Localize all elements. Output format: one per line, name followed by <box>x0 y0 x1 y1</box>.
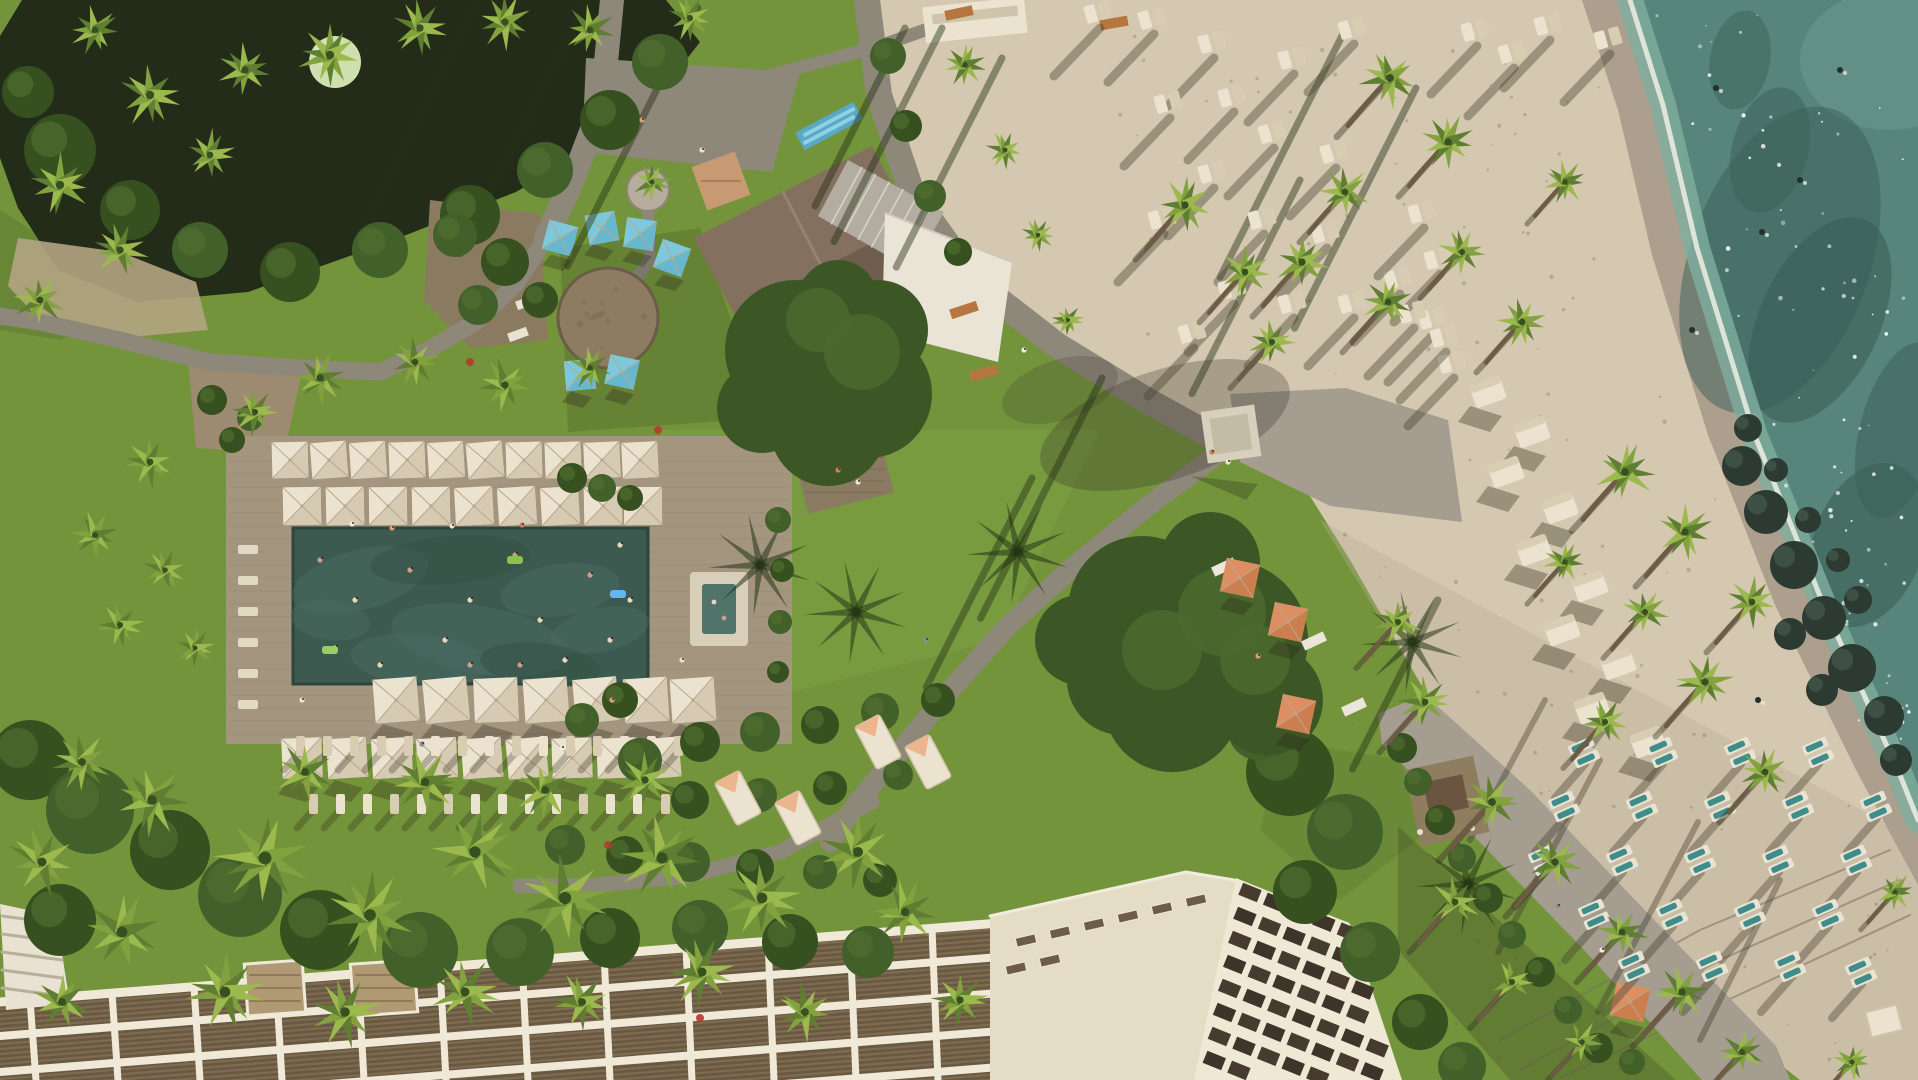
palm-crown <box>340 1007 350 1017</box>
spa-guest <box>712 600 717 605</box>
spa-guest <box>722 616 727 621</box>
ocean-sparkle <box>1818 112 1820 114</box>
palm-crown <box>1551 858 1558 865</box>
person <box>299 697 304 702</box>
person <box>1021 347 1026 352</box>
blue-umbrella-pole <box>638 232 641 235</box>
person <box>1599 947 1604 952</box>
person <box>559 745 564 750</box>
pool-swimmer-head <box>471 662 473 664</box>
aerial-resort-scene <box>0 0 1918 1080</box>
person <box>389 525 394 530</box>
pool-lounger <box>390 794 399 814</box>
pool-lounger <box>498 794 507 814</box>
sand-speckle <box>1592 257 1595 260</box>
pool-lounger <box>363 794 372 814</box>
bush-highlight <box>806 858 823 875</box>
ocean-sparkle <box>1840 472 1842 474</box>
sand-speckle <box>1136 134 1138 136</box>
shore-rock-light <box>1736 417 1749 430</box>
pool-umbrella-pole <box>366 458 369 461</box>
sand-speckle <box>1405 119 1408 122</box>
palm-crown <box>162 567 168 573</box>
bar-stool <box>1417 829 1423 835</box>
palm-crown <box>501 381 508 388</box>
shore-rock <box>1806 674 1838 706</box>
sand-speckle <box>1514 133 1516 135</box>
palm-crown <box>656 852 667 863</box>
palm-crown <box>1066 318 1070 322</box>
sand-speckle <box>1572 297 1575 300</box>
pool-swimmer-head <box>356 597 358 599</box>
shore-rock <box>1826 548 1850 572</box>
pool-swimmer-head <box>516 552 518 554</box>
bush-highlight <box>770 612 782 624</box>
sand-speckle <box>1463 226 1466 229</box>
ocean-sparkle <box>1907 710 1911 714</box>
ocean-sparkle <box>1890 466 1894 470</box>
palm-crown <box>259 852 272 865</box>
palm-crown <box>1036 233 1040 237</box>
sand-speckle <box>1540 791 1543 794</box>
bush-highlight <box>675 785 694 804</box>
swim-splash <box>1719 89 1723 93</box>
ocean-swimmer <box>1759 229 1765 235</box>
bush-highlight <box>865 697 884 716</box>
palm-crown <box>147 459 154 466</box>
swim-splash <box>1765 233 1769 237</box>
shore-rock <box>1844 586 1872 614</box>
pool-umbrella-pole <box>600 458 603 461</box>
blue-umbrella-pole <box>600 226 603 229</box>
ocean-swimmer <box>1797 177 1803 183</box>
pool-lounger <box>238 545 258 554</box>
ocean-sparkle <box>1829 514 1833 518</box>
person <box>349 521 354 526</box>
sand-speckle <box>1462 281 1466 285</box>
bush-highlight <box>200 388 215 403</box>
bush-highlight <box>1528 960 1543 975</box>
person <box>449 523 454 528</box>
sand-texture <box>606 318 611 323</box>
person <box>1209 449 1214 454</box>
pool-umbrella-pole <box>525 756 528 759</box>
pool-umbrella-pole <box>641 504 644 507</box>
sand-speckle <box>1320 48 1324 52</box>
palm-crown <box>1444 138 1451 145</box>
ocean-sparkle <box>1900 738 1902 740</box>
shore-rock <box>1744 490 1788 534</box>
person-head <box>612 698 614 700</box>
bush-highlight <box>1315 802 1353 840</box>
pool-umbrella-pole <box>494 698 497 701</box>
ocean-sparkle <box>1872 472 1876 476</box>
palm-crown <box>1681 528 1688 535</box>
ocean-sparkle <box>1710 41 1712 43</box>
sand-speckle <box>1523 113 1526 116</box>
ocean-sparkle <box>1845 529 1847 531</box>
palm-crown <box>1395 619 1401 625</box>
person-head <box>522 523 524 525</box>
palm-crown <box>578 998 586 1006</box>
palm-crown <box>146 91 154 99</box>
sand-speckle <box>1601 544 1605 548</box>
ocean-sparkle <box>1843 281 1846 284</box>
ocean-sparkle <box>1867 548 1871 552</box>
shore-rock-light <box>1867 700 1885 718</box>
sand-speckle <box>1714 498 1716 500</box>
sand-speckle <box>1598 86 1600 88</box>
sand-speckle <box>1371 609 1373 611</box>
shore-rock-light <box>1846 589 1859 602</box>
shore-rock-light <box>1805 600 1825 620</box>
sand-speckle <box>1867 914 1869 916</box>
bush-highlight <box>893 113 909 129</box>
bush-highlight <box>847 931 873 957</box>
pool-swimmer-head <box>541 617 543 619</box>
palm-crown <box>901 908 909 916</box>
sand-speckle <box>1146 332 1150 336</box>
orange-umbrella-pole <box>1628 1000 1631 1003</box>
bush-highlight <box>1279 866 1311 898</box>
sand-texture <box>600 302 603 305</box>
palm-crown <box>207 152 214 159</box>
ocean-sparkle <box>1879 107 1881 109</box>
palm-crown <box>416 24 423 31</box>
palm-crown <box>1579 1039 1585 1045</box>
bush-highlight <box>886 763 901 778</box>
palm-crown <box>1342 189 1349 196</box>
pool-lounger <box>444 794 453 814</box>
palm-crown <box>1488 798 1496 806</box>
palm-crown <box>1509 979 1515 985</box>
person-head <box>562 746 564 748</box>
palm-crown <box>641 776 648 783</box>
palm-crown <box>1642 609 1648 615</box>
pool-swimmer-head <box>471 597 473 599</box>
person-head <box>838 468 840 470</box>
flower-shrub <box>696 1014 704 1022</box>
palm-crown <box>801 1008 809 1016</box>
sand-speckle <box>1510 96 1513 99</box>
ocean-sparkle <box>1852 278 1857 283</box>
palm-crown <box>1298 258 1305 265</box>
sand-speckle <box>1358 719 1361 722</box>
ocean-sparkle <box>1795 245 1798 248</box>
ocean-sparkle <box>1874 275 1876 277</box>
pool-umbrella-pole <box>483 458 486 461</box>
sand-texture <box>588 317 592 321</box>
bush-highlight <box>462 289 482 309</box>
pool-lounger <box>238 669 258 678</box>
ocean-sparkle <box>1884 332 1888 336</box>
pool-umbrella-pole <box>691 698 694 701</box>
pool-umbrella-pole <box>601 504 604 507</box>
ocean-sparkle <box>1777 163 1781 167</box>
ocean-sparkle <box>1851 520 1853 522</box>
monkeypod-tree <box>717 363 807 453</box>
palm-crown <box>241 66 248 73</box>
aerial-resort-photo <box>0 0 1918 1080</box>
sand-speckle <box>1659 395 1662 398</box>
person-head <box>352 522 354 524</box>
pool-umbrella-pole <box>561 458 564 461</box>
pool-lounger <box>238 607 258 616</box>
pool-lounger <box>512 736 521 756</box>
shore-rock <box>1795 507 1821 533</box>
pool-lounger <box>238 576 258 585</box>
sand-texture <box>641 313 647 319</box>
ocean-sparkle <box>1798 397 1800 399</box>
pool-umbrella-pole <box>327 458 330 461</box>
sand-speckle <box>1257 90 1260 93</box>
person <box>419 741 424 746</box>
bush-highlight <box>568 706 585 723</box>
ocean-sparkle <box>1813 370 1815 372</box>
sand-texture <box>600 347 604 351</box>
sand-speckle <box>1289 110 1292 113</box>
pool-umbrella-pole <box>558 504 561 507</box>
pavilion-roof-top <box>1210 414 1253 455</box>
sand-speckle <box>1656 1038 1659 1041</box>
ocean-sparkle <box>1784 484 1788 488</box>
sand-speckle <box>1142 59 1145 62</box>
shore-rock-light <box>1747 494 1767 514</box>
flower-shrub <box>466 358 474 366</box>
pool-swimmer-head <box>521 662 523 664</box>
palm-crown <box>117 927 128 938</box>
sand-speckle <box>1475 340 1479 344</box>
sand-speckle <box>1522 231 1525 234</box>
shore-rock-light <box>1882 747 1896 761</box>
person-head <box>702 148 704 150</box>
sand-speckle <box>1612 805 1615 808</box>
ocean-sparkle <box>1821 121 1823 123</box>
sand-texture <box>581 301 586 306</box>
sand-speckle <box>1335 373 1337 375</box>
sand-speckle <box>1491 144 1493 146</box>
palm-crown <box>1762 769 1769 776</box>
pool-lounger <box>323 736 332 756</box>
pool-lounger <box>377 736 386 756</box>
pool-lounger <box>579 794 588 814</box>
ocean-sparkle <box>1772 423 1775 426</box>
person-head <box>1258 654 1260 656</box>
palm-crown <box>1562 179 1568 185</box>
swim-splash <box>1803 181 1807 185</box>
ocean-sparkle <box>1833 465 1836 468</box>
person-head <box>1602 948 1604 950</box>
sand-speckle <box>1874 902 1878 906</box>
bush-highlight <box>586 96 616 126</box>
sand-speckle <box>1526 232 1529 235</box>
person-head <box>1558 904 1560 906</box>
ocean-sparkle <box>1866 584 1868 586</box>
sand-speckle <box>1549 790 1551 792</box>
palm-crown <box>1002 147 1007 152</box>
bush-highlight <box>816 774 833 791</box>
bush-highlight <box>684 726 704 746</box>
palm-crown <box>1701 678 1708 685</box>
ocean-sparkle <box>1852 297 1855 300</box>
bush-highlight <box>493 925 527 959</box>
shore-rock <box>1734 414 1762 442</box>
pool-swimmer-head <box>611 637 613 639</box>
pool-lounger <box>485 736 494 756</box>
ocean-sparkle <box>1845 623 1848 626</box>
sand-speckle <box>1399 606 1402 609</box>
tree-highlight <box>786 288 850 352</box>
bush-highlight <box>638 40 666 68</box>
sand-speckle <box>1743 966 1746 969</box>
sand-speckle <box>1635 674 1639 678</box>
blue-umbrella-pole <box>558 236 561 239</box>
bush-highlight <box>947 241 961 255</box>
sand-speckle <box>1557 962 1561 966</box>
ocean-swimmer <box>1755 697 1761 703</box>
palm-crown <box>1519 319 1526 326</box>
ocean-sparkle <box>1846 620 1849 623</box>
sand-speckle <box>1394 97 1396 99</box>
palm-crown <box>461 988 470 997</box>
sand-speckle <box>1834 1042 1836 1044</box>
pool-lounger <box>309 794 318 814</box>
sand-texture <box>613 287 618 292</box>
bush-highlight <box>591 477 605 491</box>
palm-crown <box>1181 201 1188 208</box>
shore-rock-light <box>1766 460 1777 471</box>
sand-speckle <box>1118 113 1122 117</box>
palm-crown <box>252 409 258 415</box>
ocean-sparkle <box>1781 220 1786 225</box>
sand-speckle <box>1546 392 1550 396</box>
ocean-sparkle <box>1812 540 1815 543</box>
pool-umbrella-pole <box>638 458 641 461</box>
ocean-sparkle <box>1769 115 1772 118</box>
pool-umbrella-pole <box>429 504 432 507</box>
palm-crown <box>117 622 123 628</box>
ocean-sparkle <box>1739 31 1742 34</box>
pool-lounger <box>471 794 480 814</box>
bush-highlight <box>1622 1052 1635 1065</box>
ocean-sparkle <box>1905 704 1908 707</box>
blue-umbrella-pole <box>670 256 673 259</box>
ocean-sparkle <box>1761 144 1766 149</box>
ocean-sparkle <box>1828 508 1833 513</box>
pool-umbrella-pole <box>444 698 447 701</box>
flower-shrub <box>604 841 612 849</box>
palm-crown <box>956 996 963 1003</box>
sand-speckle <box>1469 459 1472 462</box>
pool-lounger <box>593 736 602 756</box>
pool-lounger <box>458 736 467 756</box>
pool-umbrella-pole <box>472 504 475 507</box>
person <box>835 467 840 472</box>
palm-crown <box>301 768 309 776</box>
palm-crown <box>192 645 197 650</box>
ocean-sparkle <box>1849 612 1851 614</box>
bush-highlight <box>358 228 386 256</box>
ocean-sparkle <box>1858 719 1860 721</box>
bush-highlight <box>768 920 796 948</box>
palm-crown <box>412 359 419 366</box>
person-head <box>392 526 394 528</box>
sand-speckle <box>1394 162 1396 164</box>
person <box>1555 903 1560 908</box>
palm-crown <box>1269 339 1275 345</box>
ocean-sparkle <box>1900 516 1904 520</box>
sand-texture <box>585 312 590 317</box>
sand-speckle <box>1569 670 1572 673</box>
ocean-sparkle <box>1705 25 1707 27</box>
sand-speckle <box>1687 568 1691 572</box>
shore-rock <box>1864 696 1904 736</box>
palm-crown <box>698 968 707 977</box>
sand-speckle <box>1537 348 1539 350</box>
palm-crown <box>1619 929 1626 936</box>
pool-swimmer-head <box>381 662 383 664</box>
person-head <box>1024 348 1026 350</box>
palm-crown <box>687 15 693 21</box>
person <box>1255 653 1260 658</box>
sand-speckle <box>1487 169 1490 172</box>
orange-umbrella-pole <box>1238 576 1241 579</box>
bush-highlight <box>437 217 459 239</box>
pool-umbrella-pole <box>544 698 547 701</box>
sand-speckle <box>1869 956 1873 960</box>
palm-crown <box>1386 74 1394 82</box>
bush-highlight <box>1428 808 1443 823</box>
ocean-sparkle <box>1708 73 1712 77</box>
bush-highlight <box>31 121 67 157</box>
sand-speckle <box>1566 439 1568 441</box>
shore-rock <box>1774 618 1806 650</box>
pool-umbrella-pole <box>343 504 346 507</box>
bush-highlight <box>586 914 616 944</box>
palm-crown <box>220 987 231 998</box>
palm-crown <box>316 374 323 381</box>
palm-crown <box>501 18 508 25</box>
sand-speckle <box>1489 84 1491 86</box>
ocean-sparkle <box>1902 581 1905 584</box>
palm-crown <box>56 181 64 189</box>
pool-lounger <box>404 736 413 756</box>
bush-highlight <box>266 248 296 278</box>
pool-swimmer-head <box>411 567 413 569</box>
person <box>639 117 644 122</box>
ocean-sparkle <box>1746 228 1748 230</box>
sand-speckle <box>1451 49 1455 53</box>
ocean-sparkle <box>1872 314 1874 316</box>
sand-speckle <box>1550 703 1553 706</box>
tree-highlight <box>1122 610 1202 690</box>
palm-crown <box>853 847 863 857</box>
palm-crown <box>1678 988 1685 995</box>
bush-highlight <box>772 560 784 572</box>
pool-umbrella-pole <box>522 458 525 461</box>
bush-highlight <box>1557 999 1571 1013</box>
ocean-swimmer <box>1713 85 1719 91</box>
palm-crown <box>92 532 98 538</box>
person <box>855 479 860 484</box>
blue-umbrella-pole <box>620 370 623 373</box>
sand-speckle <box>1545 180 1548 183</box>
flower-shrub <box>654 426 662 434</box>
person <box>923 637 928 642</box>
person <box>679 657 684 662</box>
ocean-sparkle <box>1691 122 1694 125</box>
shore-rock-light <box>1832 649 1854 671</box>
